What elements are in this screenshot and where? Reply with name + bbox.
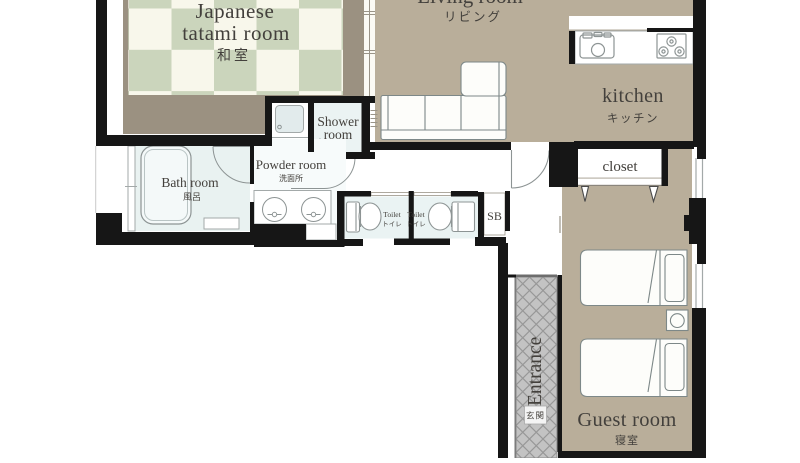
svg-text:Living room: Living room bbox=[417, 0, 523, 8]
svg-text:room: room bbox=[324, 127, 353, 142]
svg-text:風呂: 風呂 bbox=[183, 192, 201, 202]
svg-text:kitchen: kitchen bbox=[602, 85, 664, 107]
svg-text:寝室: 寝室 bbox=[615, 433, 639, 447]
svg-text:和室: 和室 bbox=[217, 47, 251, 64]
svg-text:リビング: リビング bbox=[444, 10, 502, 24]
svg-text:Powder room: Powder room bbox=[256, 157, 326, 172]
svg-text:洗面所: 洗面所 bbox=[279, 173, 303, 183]
svg-text:トイレ: トイレ bbox=[382, 221, 402, 228]
svg-text:キッチン: キッチン bbox=[607, 112, 659, 125]
svg-text:SB: SB bbox=[487, 209, 502, 223]
svg-text:Guest room: Guest room bbox=[577, 409, 676, 431]
svg-text:closet: closet bbox=[603, 159, 639, 175]
svg-text:Entrance: Entrance bbox=[525, 337, 546, 406]
svg-text:玄関: 玄関 bbox=[526, 411, 545, 421]
svg-text:Toilet: Toilet bbox=[383, 210, 401, 219]
svg-text:tatami room: tatami room bbox=[182, 21, 290, 45]
svg-text:Toilet: Toilet bbox=[407, 210, 425, 219]
svg-text:Bath room: Bath room bbox=[161, 175, 219, 190]
svg-text:トイレ: トイレ bbox=[406, 221, 426, 228]
svg-text:Japanese: Japanese bbox=[196, 0, 275, 23]
